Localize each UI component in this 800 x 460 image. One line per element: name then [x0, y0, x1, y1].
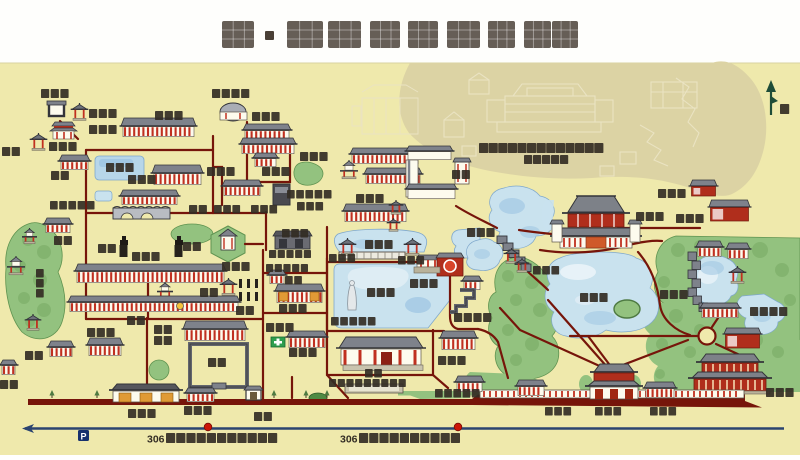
svg-text:306: 306 — [147, 434, 165, 446]
svg-text:306: 306 — [340, 434, 358, 446]
svg-text:P: P — [80, 432, 86, 442]
